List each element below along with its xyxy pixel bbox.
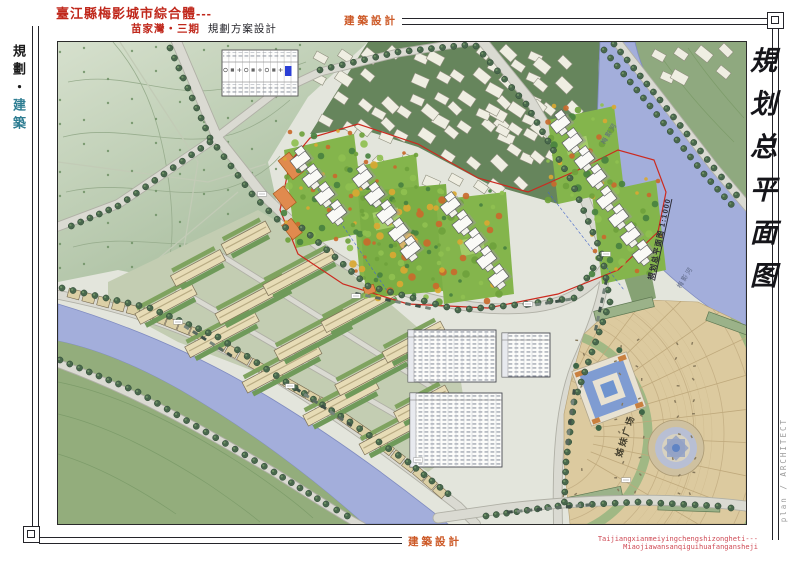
frame-left-line — [32, 26, 39, 527]
master-plan-map: 梅影河 梅影河 規划总平面图 1:1000 姊妹广场 — [57, 41, 747, 525]
subtitle-phase: 苗家灣・三期 — [131, 23, 200, 35]
project-title: 臺江縣梅影城市綜合體--- — [56, 3, 212, 22]
frame-top-line — [402, 18, 770, 25]
drawing-sheet: 臺江縣梅影城市綜合體--- 苗家灣・三期 規劃方案設計 建築設計 規劃・建築 規… — [0, 0, 800, 565]
project-subtitle: 苗家灣・三期 規劃方案設計 — [131, 21, 277, 36]
left-label-separator: ・ — [11, 80, 26, 98]
subtitle-type: 規劃方案設計 — [208, 23, 277, 35]
legend-box — [222, 50, 298, 96]
frame-bottom-line — [39, 537, 402, 544]
frame-corner-ornament-bottom-left — [23, 526, 40, 543]
left-label-architecture: 建築 — [11, 98, 26, 134]
plaza-medallion — [648, 420, 704, 476]
department-label-top: 建築設計 — [344, 13, 398, 28]
drawing-type-label: plan / ARCHITECT — [779, 418, 788, 522]
left-label-planning: 規劃 — [11, 44, 26, 80]
left-margin-label: 規劃・建築 — [9, 44, 28, 134]
site-plan-drawing — [58, 42, 746, 524]
department-label-bottom: 建築設計 — [408, 534, 462, 549]
pinyin-line2: Miaojiawansanqiguihuafangansheji — [518, 544, 758, 552]
frame-corner-ornament-top-right — [767, 12, 784, 29]
pinyin-caption: Taijiangxianmeiyingchengshizongheti--- M… — [518, 536, 758, 551]
